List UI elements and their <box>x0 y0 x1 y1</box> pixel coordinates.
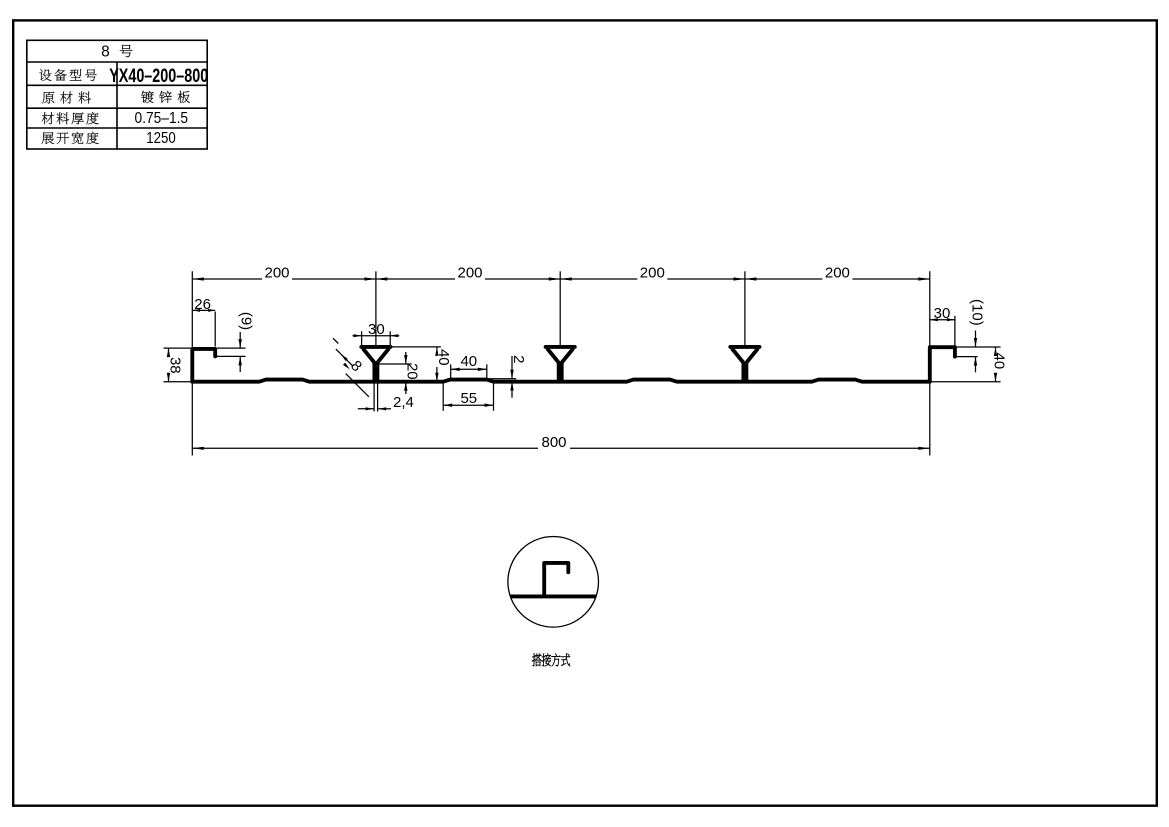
svg-text:(9): (9) <box>238 312 255 330</box>
svg-text:38: 38 <box>166 357 183 374</box>
svg-text:40: 40 <box>435 349 452 366</box>
svg-text:1250: 1250 <box>146 130 176 147</box>
svg-text:30: 30 <box>934 305 951 322</box>
svg-text:200: 200 <box>264 264 289 281</box>
svg-text:800: 800 <box>541 434 566 451</box>
svg-text:55: 55 <box>460 390 477 407</box>
svg-text:200: 200 <box>825 264 850 281</box>
svg-text:40: 40 <box>460 353 477 370</box>
svg-text:YX40–200–800: YX40–200–800 <box>109 65 208 87</box>
svg-text:0.75–1.5: 0.75–1.5 <box>135 110 189 127</box>
svg-text:8: 8 <box>101 43 110 60</box>
svg-text:2: 2 <box>510 355 527 363</box>
svg-text:26: 26 <box>194 296 211 313</box>
svg-text:200: 200 <box>640 264 665 281</box>
svg-text:200: 200 <box>457 264 482 281</box>
svg-text:40: 40 <box>991 353 1008 370</box>
svg-text:20: 20 <box>403 363 420 380</box>
svg-text:(10): (10) <box>968 299 985 326</box>
svg-text:30: 30 <box>368 321 385 338</box>
svg-text:2,4: 2,4 <box>393 394 414 411</box>
svg-text:8: 8 <box>347 357 365 375</box>
